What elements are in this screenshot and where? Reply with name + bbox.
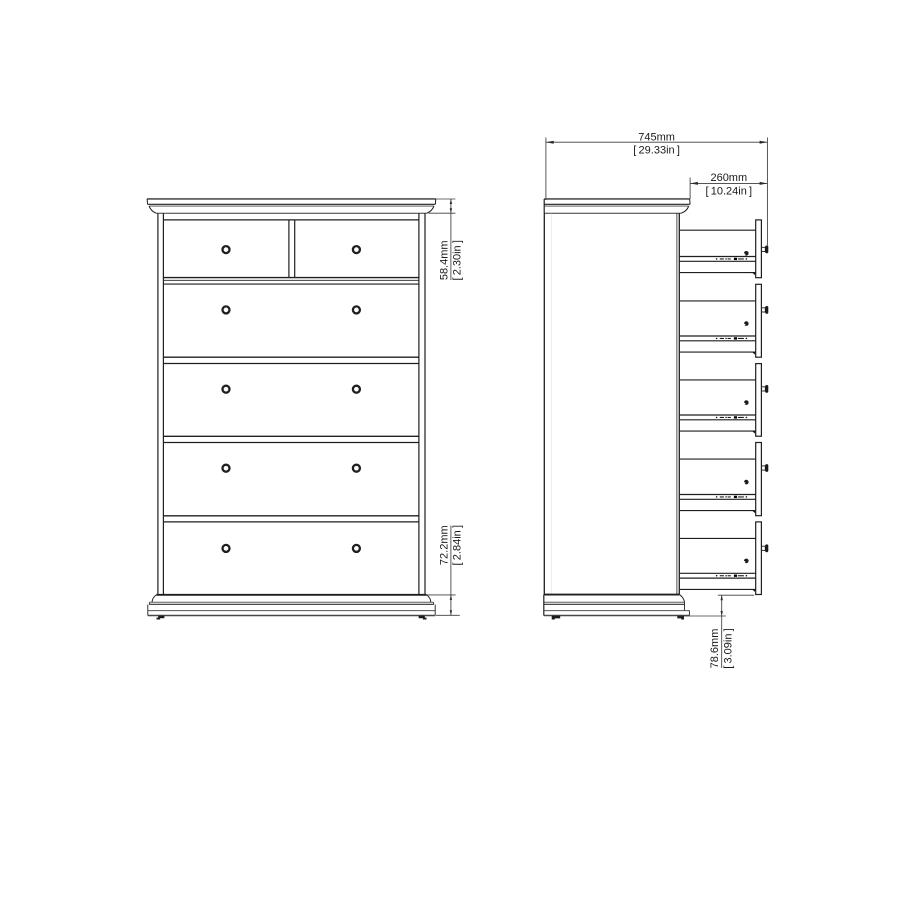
- svg-text:78.6mm: 78.6mm: [709, 629, 721, 669]
- svg-text:260mm: 260mm: [710, 172, 747, 184]
- svg-text:745mm: 745mm: [638, 131, 675, 143]
- svg-text:[ 2.84in ]: [ 2.84in ]: [452, 525, 464, 566]
- svg-text:72.2mm: 72.2mm: [438, 525, 450, 565]
- svg-text:[ 3.09in ]: [ 3.09in ]: [722, 628, 734, 669]
- svg-text:[ 2.30in ]: [ 2.30in ]: [452, 240, 464, 281]
- svg-text:[ 29.33in ]: [ 29.33in ]: [633, 145, 680, 157]
- svg-text:[ 10.24in ]: [ 10.24in ]: [705, 186, 752, 198]
- svg-text:58.4mm: 58.4mm: [438, 240, 450, 280]
